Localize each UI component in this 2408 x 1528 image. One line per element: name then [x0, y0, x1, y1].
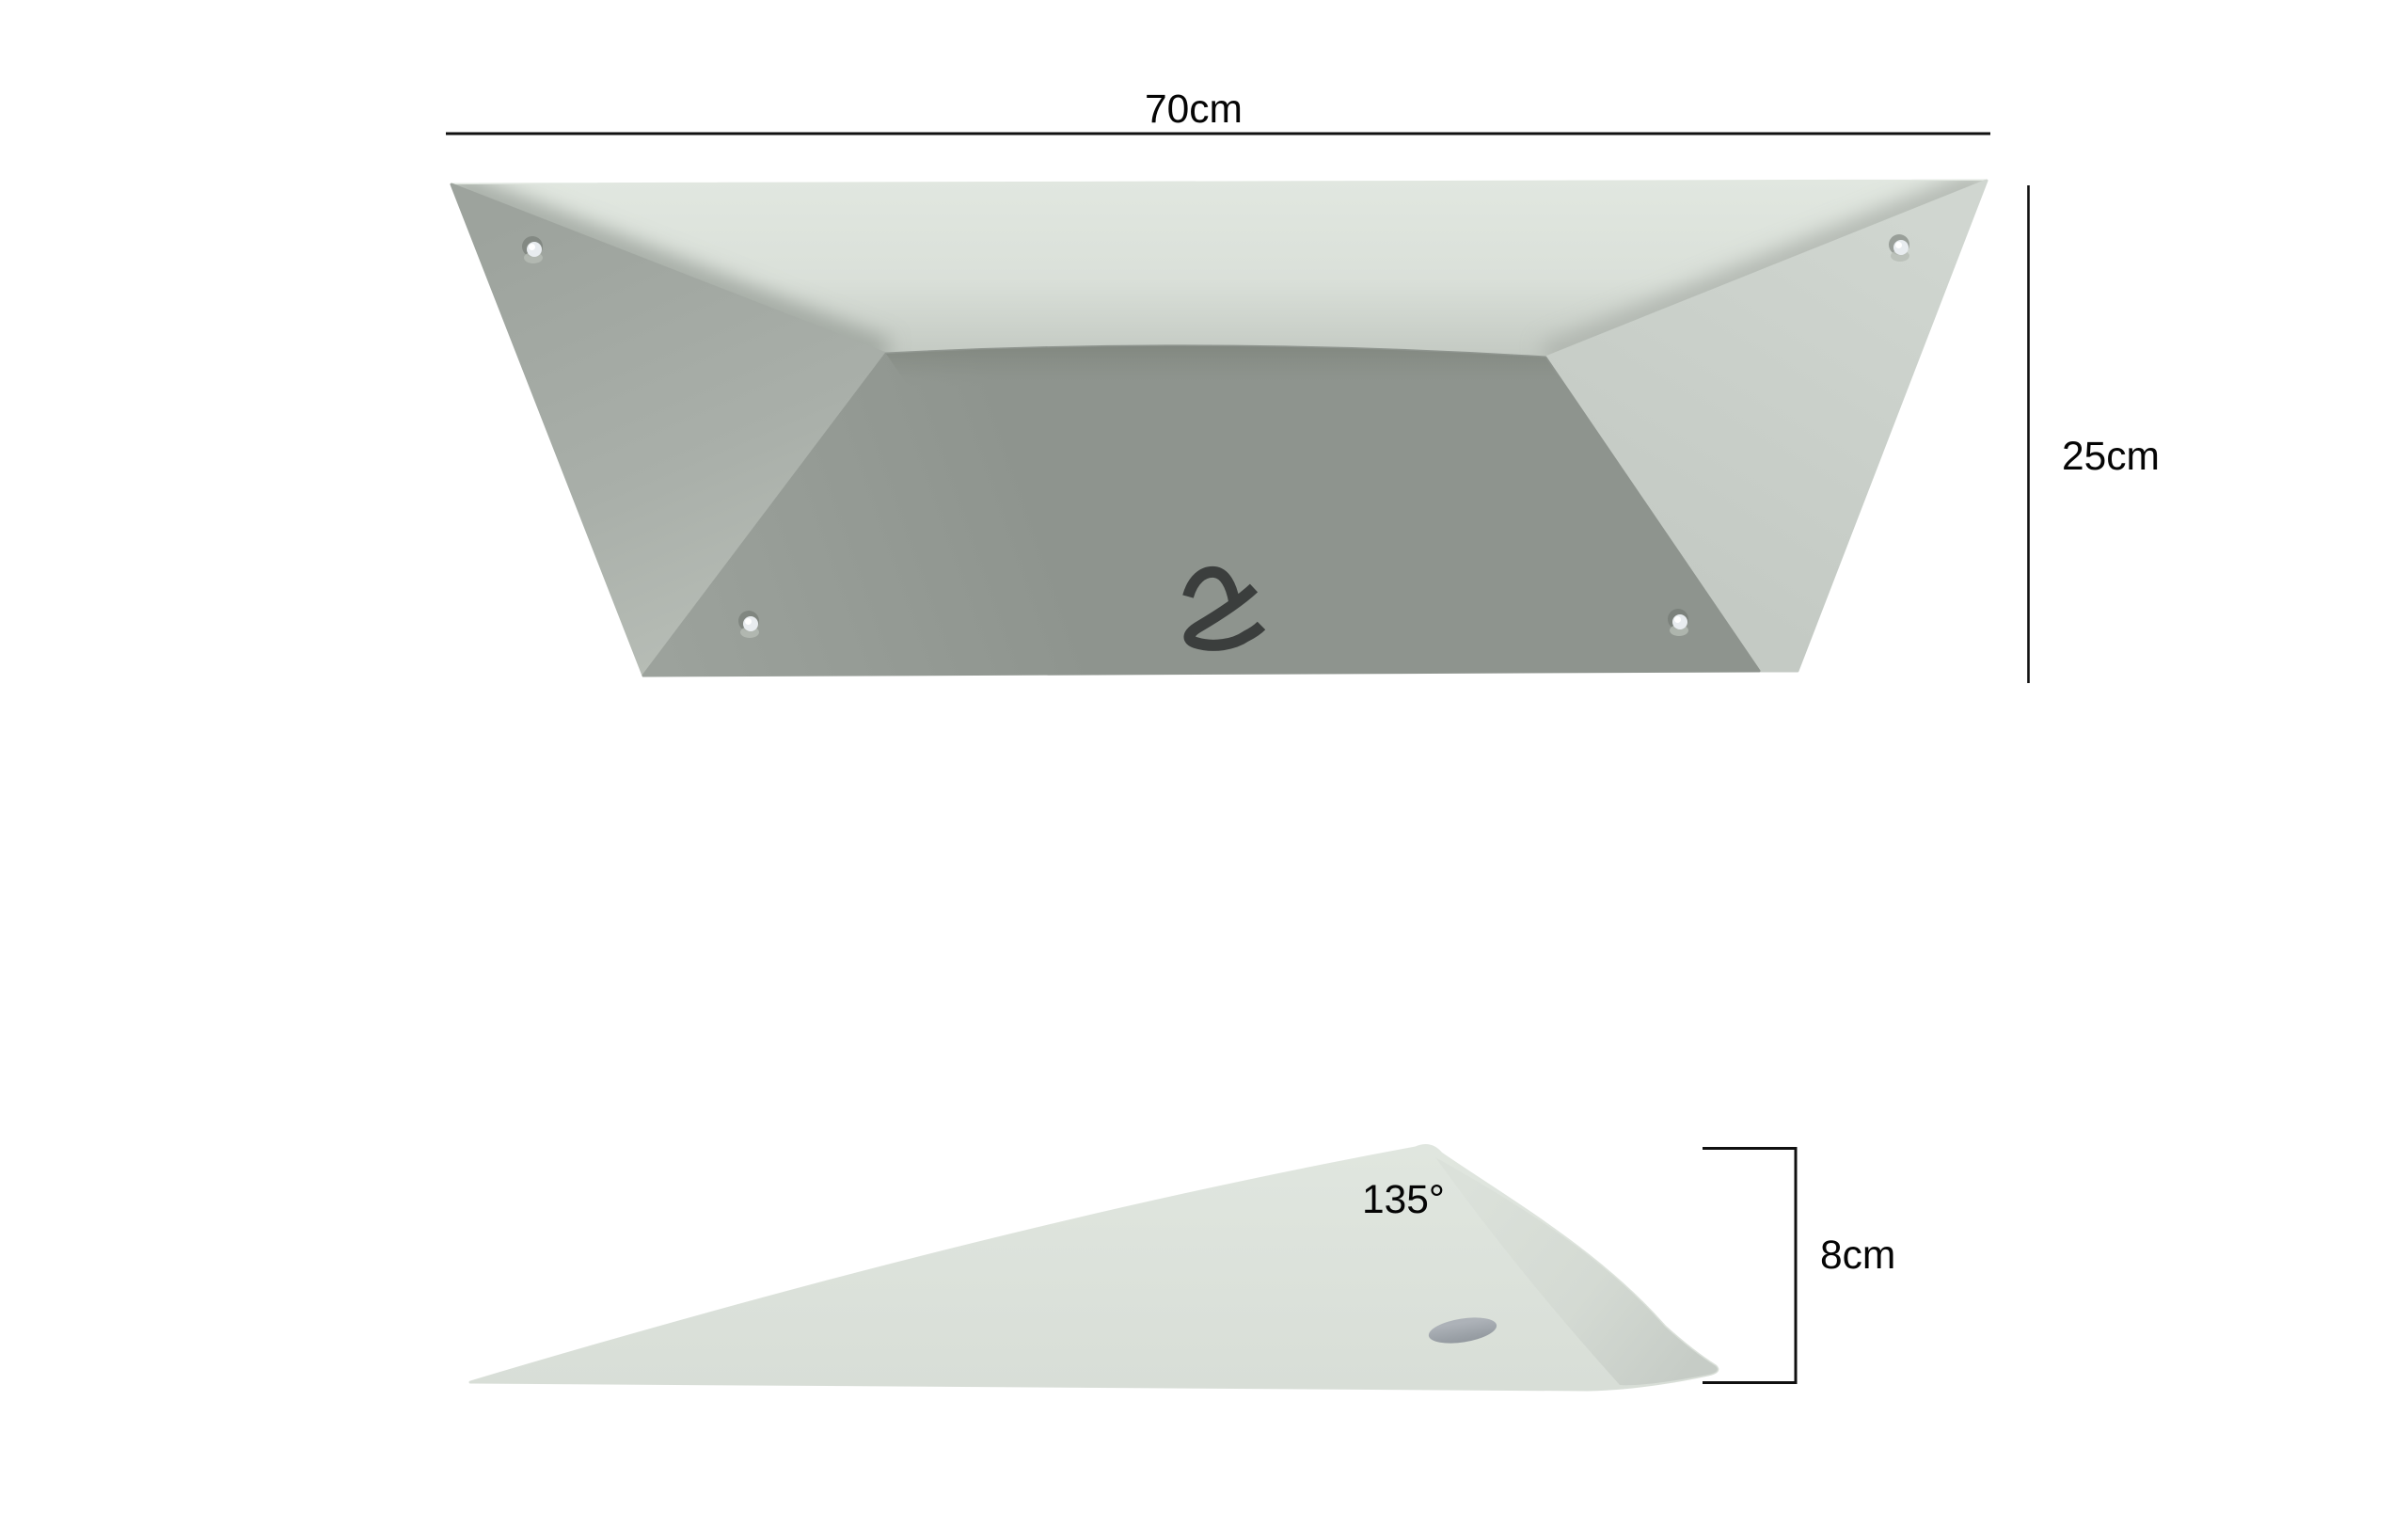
svg-text:70cm: 70cm	[1145, 88, 1243, 132]
svg-text:8cm: 8cm	[1820, 1234, 1895, 1278]
svg-text:135°: 135°	[1362, 1178, 1445, 1222]
svg-text:25cm: 25cm	[2062, 435, 2160, 479]
